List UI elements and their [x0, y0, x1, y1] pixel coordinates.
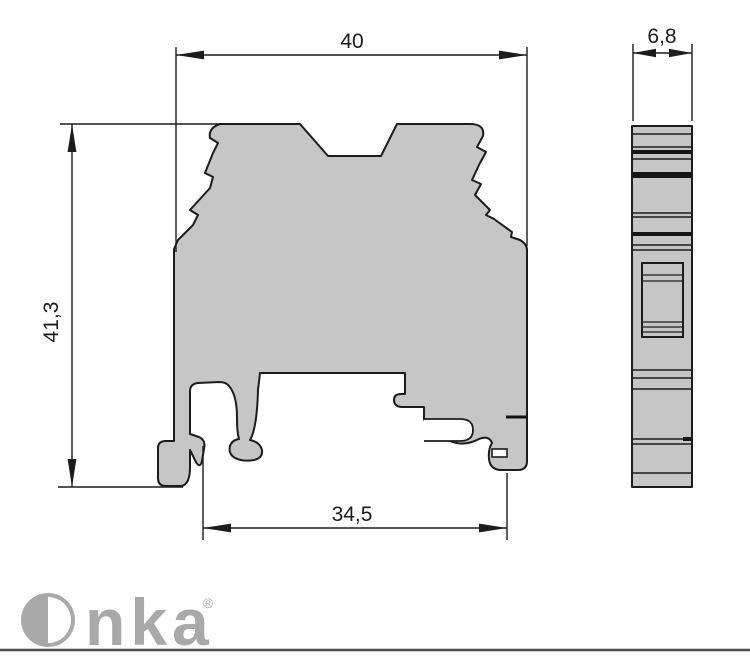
latch-notch	[492, 449, 507, 457]
arrowhead-left	[176, 51, 204, 60]
side-view-dark-mark	[683, 437, 692, 441]
side-view	[632, 126, 692, 487]
technical-drawing-canvas: 40 41,3 34,5 6,8 nka ®	[0, 0, 750, 658]
registered-trademark: ®	[203, 595, 214, 611]
onka-logo: nka ®	[21, 585, 214, 658]
arrowhead-right	[479, 524, 507, 533]
arrowhead-right	[499, 51, 527, 60]
arrowhead-up	[68, 124, 77, 152]
side-view-dark-band-1	[632, 150, 692, 154]
side-view-dark-band-2	[632, 172, 692, 178]
latch-slot	[424, 419, 473, 441]
arrowhead-right	[669, 49, 692, 57]
arrowhead-left	[203, 524, 231, 533]
side-view-dark-band-3	[632, 232, 692, 236]
arrowhead-down	[68, 459, 77, 487]
front-view	[158, 124, 527, 486]
arrowhead-left	[633, 49, 656, 57]
dimension-value: 40	[340, 30, 363, 53]
dimension-side-width: 6,8	[633, 25, 692, 121]
dimension-value: 6,8	[647, 25, 676, 48]
dimension-value: 41,3	[40, 302, 63, 343]
logo-wordmark: nka	[85, 585, 214, 658]
dimension-value: 34,5	[332, 503, 373, 526]
